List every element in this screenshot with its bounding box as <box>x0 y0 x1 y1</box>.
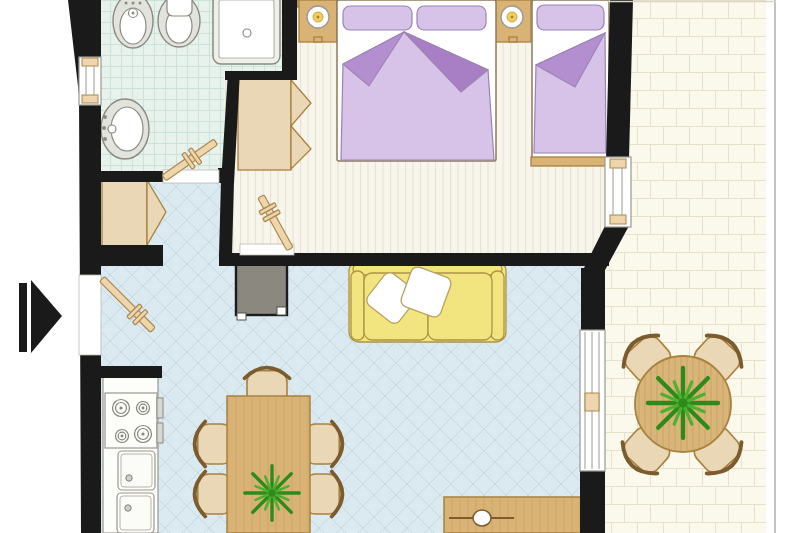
bathroom-south-wall <box>101 171 163 182</box>
entrance-opening <box>79 275 101 355</box>
sideboard <box>444 497 582 533</box>
nightstand-knob <box>509 37 517 42</box>
wall-corner <box>218 168 234 183</box>
kitchen-stub-wall <box>101 366 162 378</box>
balcony-wall-bottom <box>580 470 605 533</box>
double-bed <box>337 0 496 161</box>
pillow <box>343 6 412 30</box>
nightstand-knob <box>314 37 322 42</box>
floor-plan-drawing <box>0 0 800 533</box>
entry-stub-wall <box>101 245 163 266</box>
floor-plan-page <box>0 0 800 533</box>
bed-footboard <box>531 157 610 166</box>
stove <box>105 393 163 448</box>
bed-lamp-right <box>501 6 523 28</box>
bathroom-east-wall <box>282 0 297 73</box>
bedroom-balcony-window <box>605 157 631 227</box>
sofa <box>349 261 506 342</box>
bedroom-west-wall <box>219 181 234 255</box>
kitchen <box>103 377 163 533</box>
shower <box>213 0 280 64</box>
washbasin <box>101 99 149 159</box>
single-bed <box>531 0 610 166</box>
closet-body <box>102 178 147 247</box>
sofa-armrest <box>351 271 364 340</box>
bathroom-window <box>79 57 101 105</box>
stove-handle <box>157 423 163 443</box>
kitchen-sink <box>117 493 154 533</box>
bidet <box>113 0 153 48</box>
pillow <box>417 6 486 30</box>
pillow <box>537 5 604 30</box>
balcony-wall-mid <box>581 268 605 333</box>
toilet <box>158 0 200 47</box>
tv-unit <box>236 263 287 320</box>
bed-lamp-left <box>307 6 329 28</box>
sideboard-handle <box>473 510 491 526</box>
entrance-arrow-bar <box>19 283 27 352</box>
wardrobe-body <box>238 78 291 170</box>
window-handle <box>585 393 599 411</box>
stove-handle <box>157 398 163 418</box>
sofa-armrest <box>491 271 504 340</box>
entrance-arrow-head <box>31 280 62 353</box>
kitchen-sink <box>118 451 155 490</box>
table-plant <box>245 466 300 521</box>
dining-table <box>227 396 310 533</box>
balcony-plant <box>648 368 718 438</box>
entrance-arrow <box>19 280 62 353</box>
living-balcony-window <box>580 330 605 471</box>
balcony-wall-top <box>606 0 633 160</box>
